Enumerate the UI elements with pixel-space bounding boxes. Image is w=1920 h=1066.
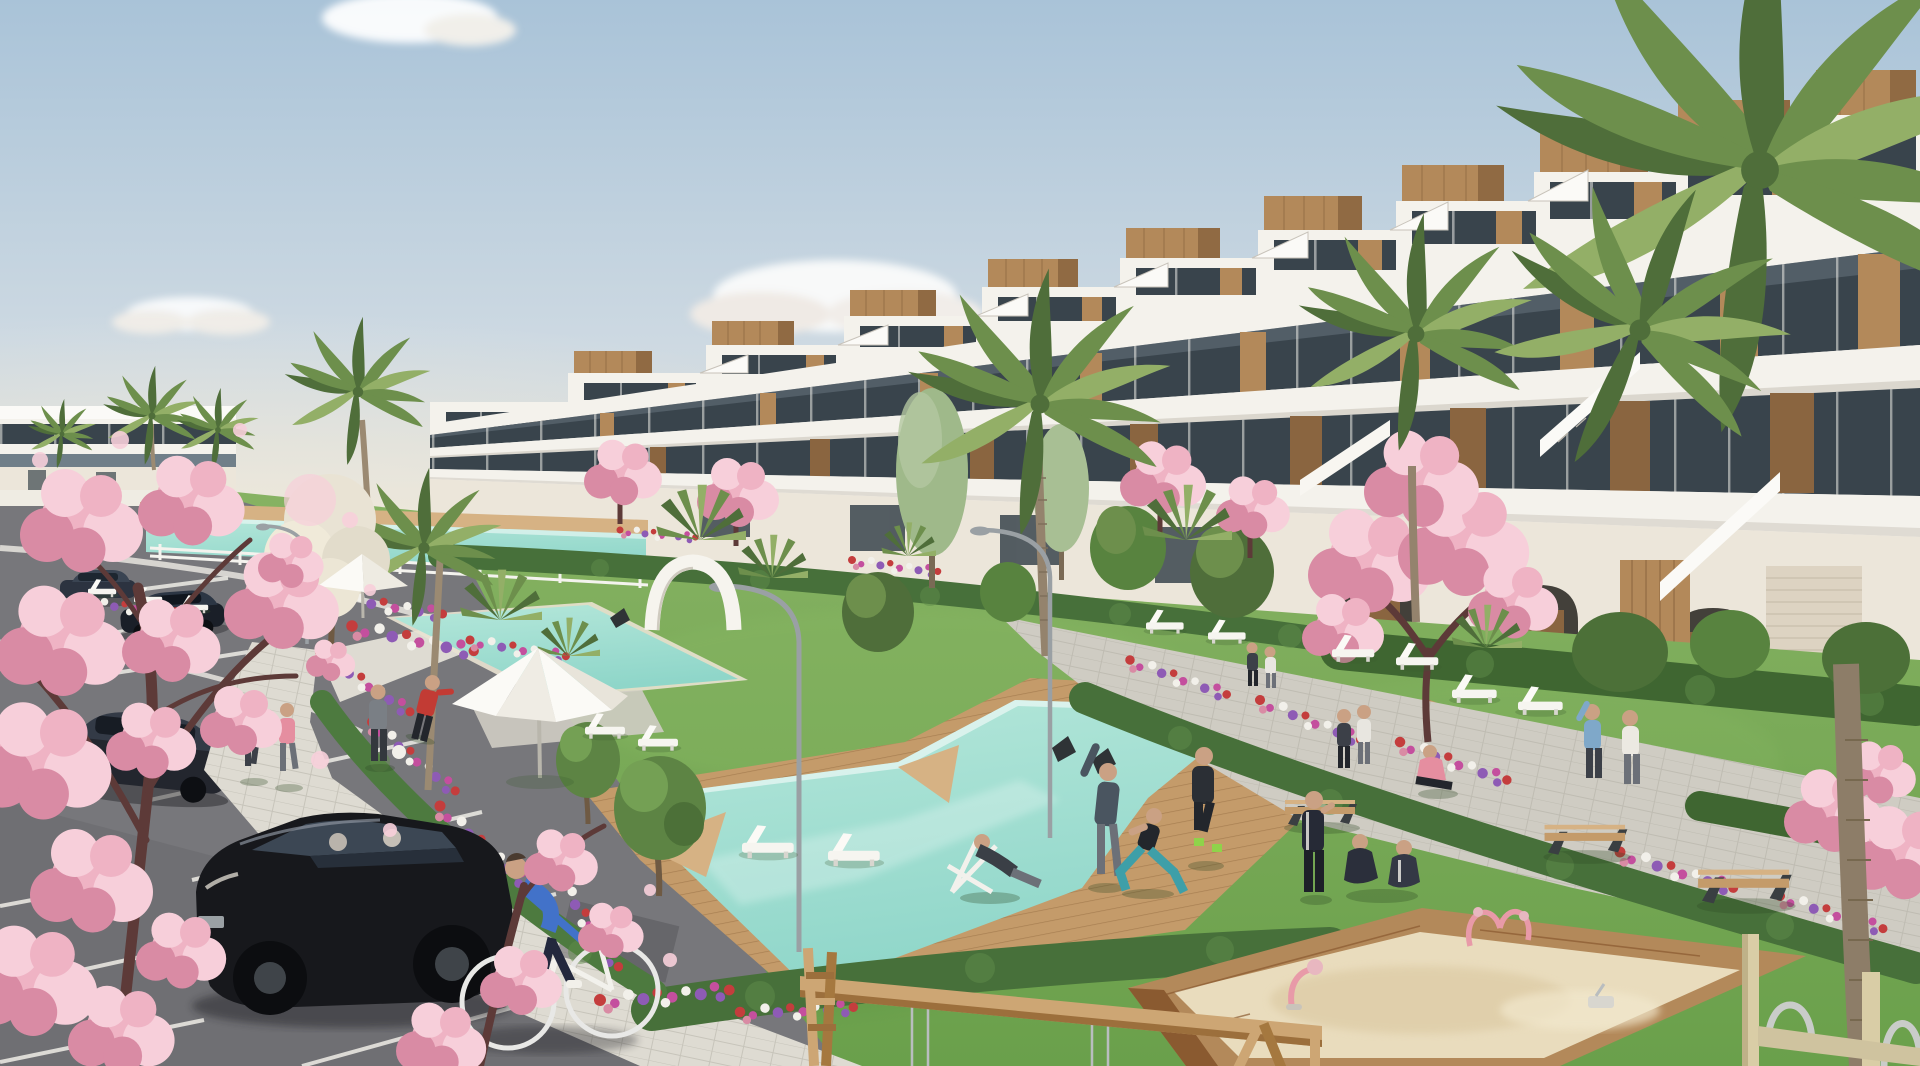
- architectural-render: [0, 0, 1920, 1066]
- garden-tree: [980, 562, 1036, 622]
- garden-tree: [842, 572, 914, 652]
- garden-tree: [1090, 506, 1166, 590]
- football: [392, 745, 406, 759]
- render-canvas: [0, 0, 1920, 1066]
